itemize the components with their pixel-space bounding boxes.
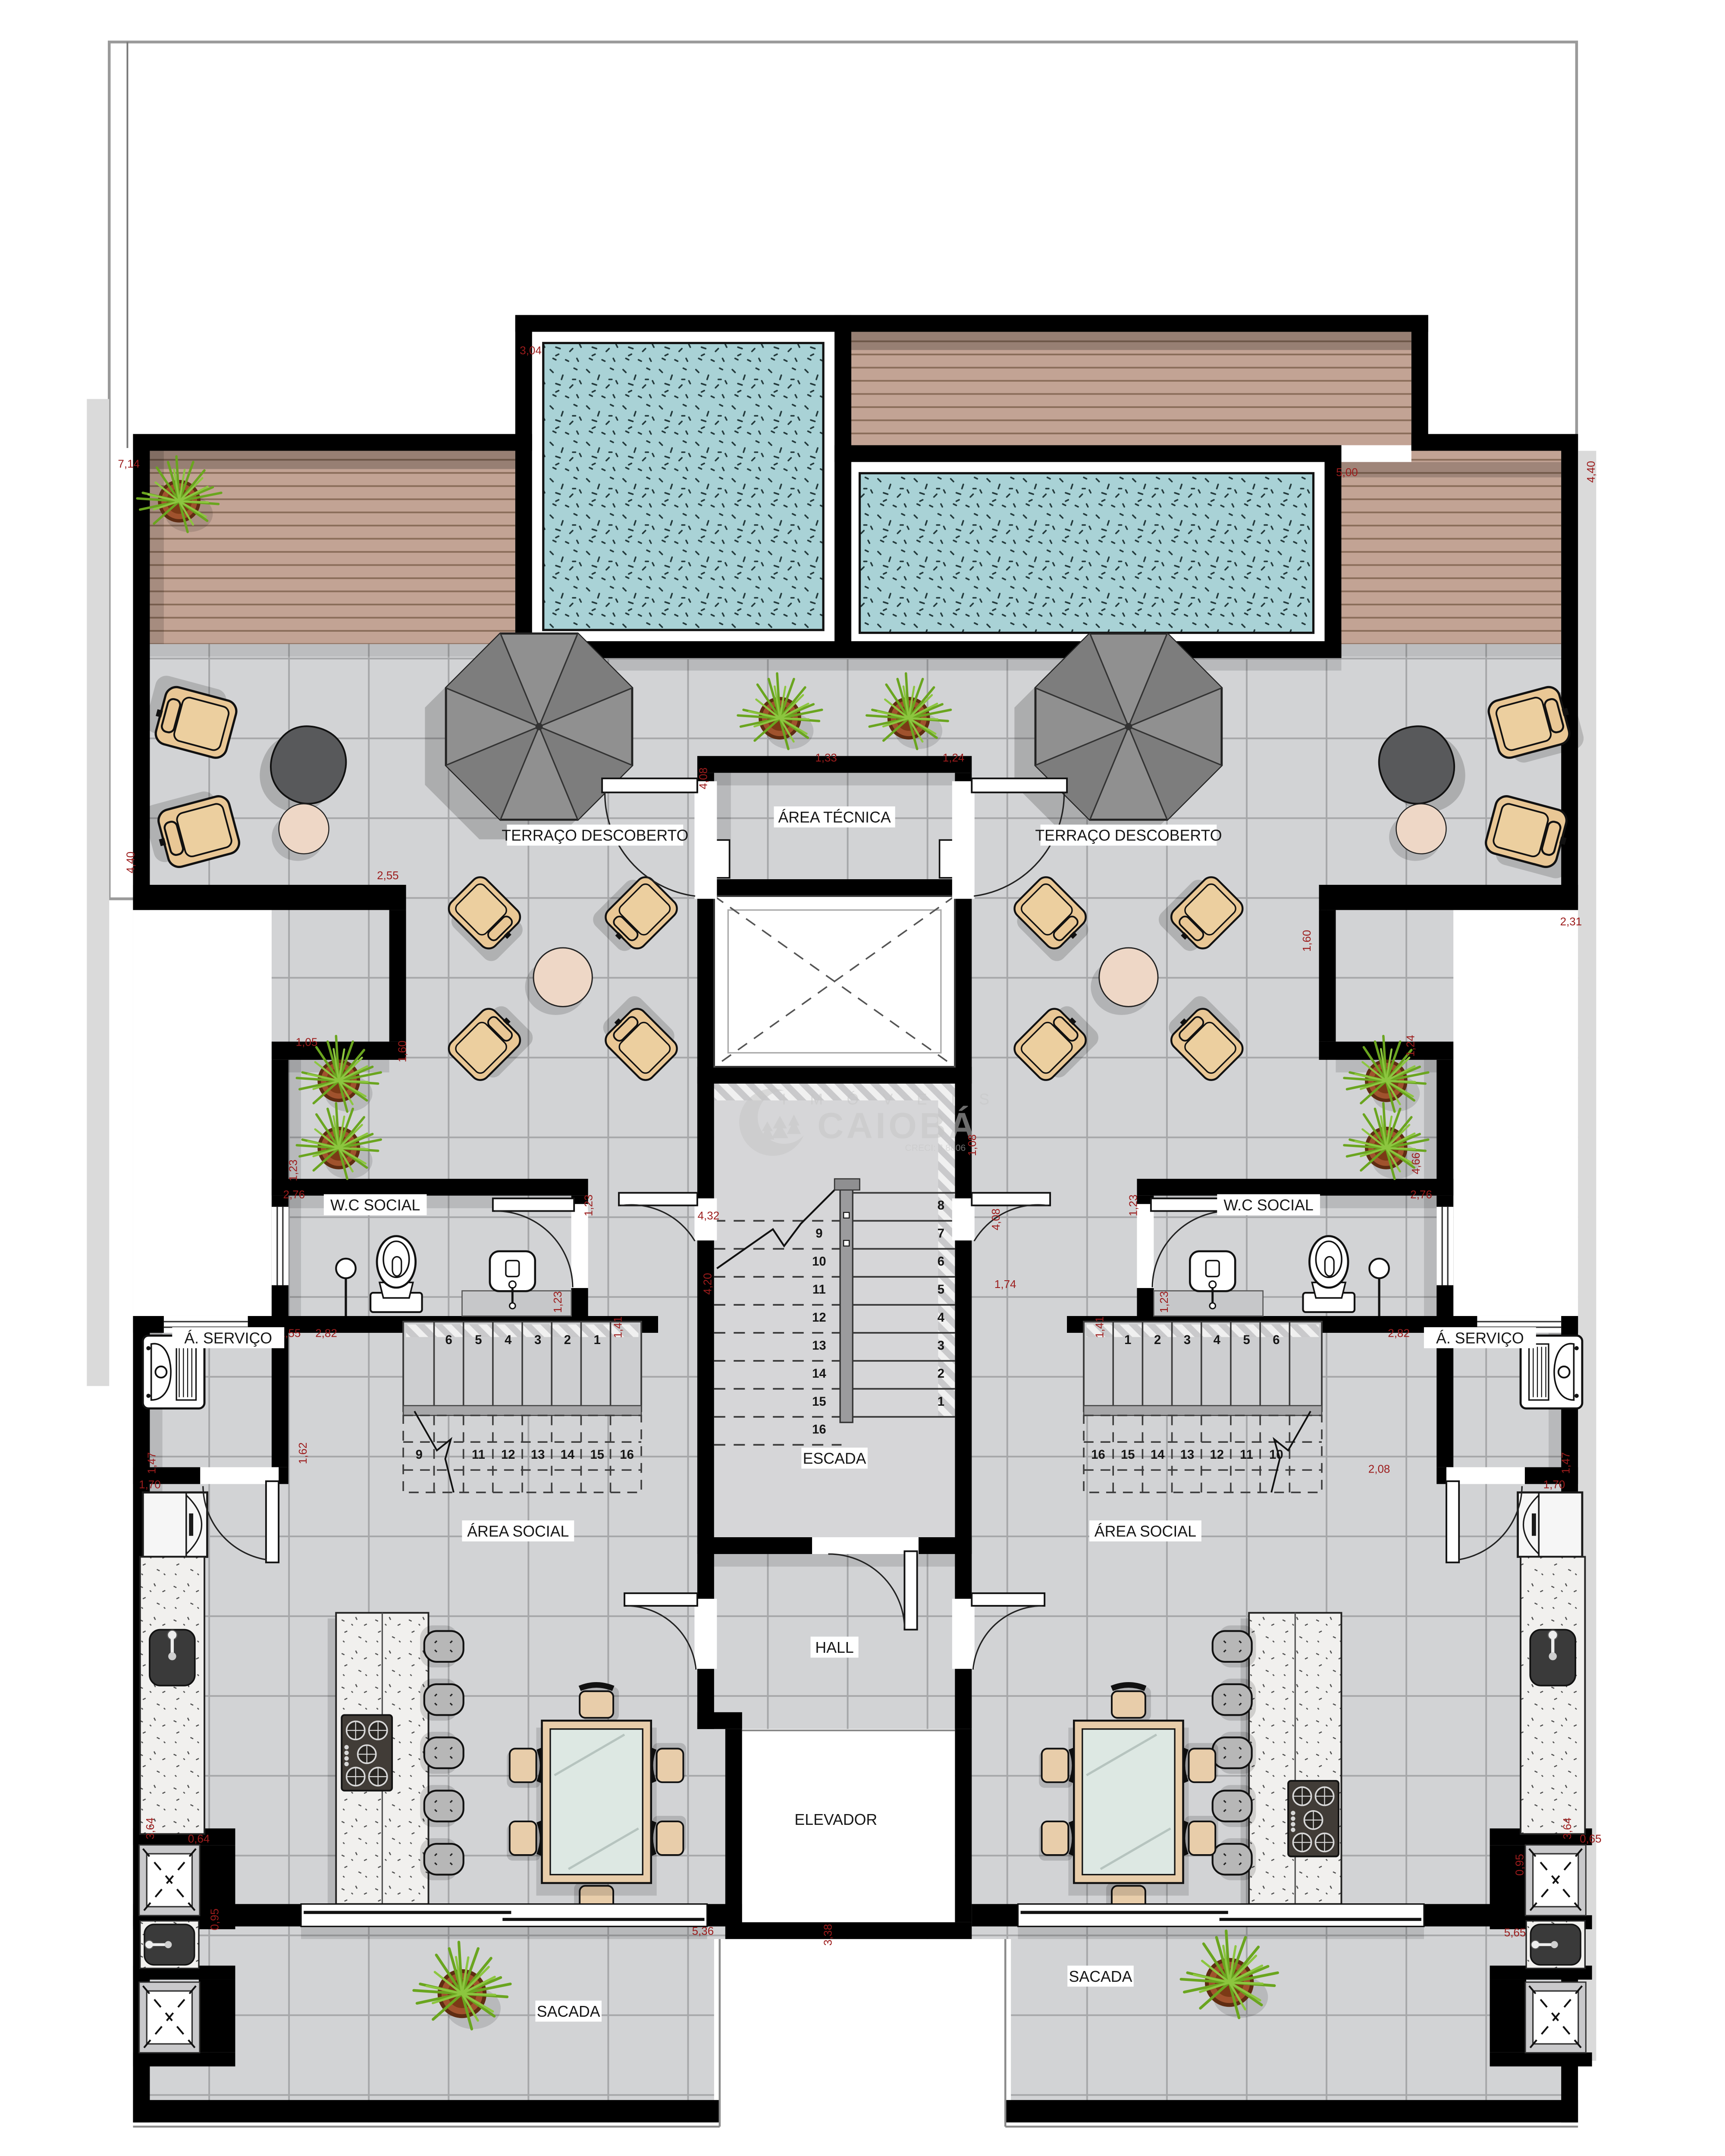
- dimension-label: 1,23: [551, 1291, 564, 1313]
- island-left: [328, 1613, 464, 1912]
- dimension-label: 5,00: [1336, 466, 1358, 479]
- counter-right: [1521, 1557, 1585, 1834]
- floor-plan-stage: I M Ó V E I S CAIOBÁ CRECI: J 8806 87654…: [0, 0, 1725, 2156]
- counter-left: [140, 1557, 204, 1834]
- dimension-label: 0,95: [1513, 1854, 1526, 1876]
- room-label: SACADA: [1069, 1968, 1132, 1985]
- stair-number: 13: [1180, 1448, 1195, 1462]
- room-label: TERRAÇO DESCOBERTO: [1035, 827, 1222, 844]
- stair-number: 6: [938, 1255, 944, 1269]
- dimension-label: 4,40: [1584, 461, 1597, 483]
- stair-number: 2: [1154, 1333, 1161, 1347]
- dimension-label: 1,41: [1093, 1316, 1106, 1338]
- dimension-label: 2,55: [377, 869, 399, 882]
- dimension-label: 3,64: [1561, 1818, 1574, 1839]
- dimension-label: 1,60: [1300, 930, 1313, 952]
- stair-number: 5: [475, 1333, 482, 1347]
- dimension-label: 1,23: [1157, 1291, 1170, 1313]
- watermark-brand: CAIOBÁ: [817, 1106, 978, 1146]
- fridge: [1518, 1492, 1582, 1557]
- dimension-label: 1,60: [396, 1040, 409, 1062]
- stair-number: 1: [594, 1333, 601, 1347]
- fridge: [143, 1492, 207, 1557]
- dimension-label: 1,23: [1126, 1194, 1139, 1216]
- dimension-label: 2,76: [283, 1188, 305, 1201]
- stair-number: 16: [812, 1423, 826, 1437]
- stair-number: 5: [938, 1283, 944, 1297]
- stair-number: 5: [1243, 1333, 1250, 1347]
- dimension-label: 3,04: [520, 344, 542, 357]
- floor-plan-svg: I M Ó V E I S CAIOBÁ CRECI: J 8806 87654…: [0, 0, 1725, 2156]
- dimension-label: 1,23: [286, 1159, 299, 1181]
- stair-number: 2: [564, 1333, 571, 1347]
- stair-number: 12: [812, 1311, 826, 1325]
- stair-number: 14: [561, 1448, 575, 1462]
- stair-number: 6: [1273, 1333, 1280, 1347]
- stair-number: 1: [938, 1395, 944, 1409]
- room-label: ÁREA SOCIAL: [467, 1523, 569, 1540]
- stair-number: 7: [938, 1227, 944, 1241]
- window-wc-left: [272, 1207, 289, 1285]
- room-label: ELEVADOR: [794, 1811, 877, 1828]
- dimension-label: 1,47: [145, 1452, 158, 1474]
- dimension-label: 2,76: [1410, 1188, 1432, 1201]
- room-label: TERRAÇO DESCOBERTO: [502, 827, 688, 844]
- dimension-label: 1,41: [612, 1316, 624, 1338]
- island-right: [1213, 1613, 1342, 1912]
- void-bottom-center: [714, 1939, 1011, 2127]
- stair-number: 4: [1214, 1333, 1221, 1347]
- room-label: HALL: [815, 1639, 853, 1656]
- stair-number: 12: [1210, 1448, 1224, 1462]
- dimension-label: 4,32: [698, 1209, 720, 1222]
- dimension-label: 4,08: [989, 1209, 1002, 1231]
- pool-right: [860, 473, 1314, 633]
- dimension-label: 4,20: [701, 1273, 714, 1295]
- dimension-label: 3,64: [144, 1818, 157, 1839]
- dimension-label: 1,05: [296, 1035, 318, 1048]
- dimension-label: 4,40: [124, 852, 137, 874]
- stair-number: 3: [1184, 1333, 1191, 1347]
- stair-number: 6: [445, 1333, 452, 1347]
- stair-number: 13: [531, 1448, 545, 1462]
- room-label: ÁREA TÉCNICA: [778, 808, 891, 826]
- stair-number: 16: [1091, 1448, 1105, 1462]
- dimension-label: 5,65: [1504, 1926, 1526, 1939]
- dimension-label: 2,08: [1368, 1463, 1390, 1476]
- stair-number: 2: [938, 1367, 944, 1381]
- window-wc-right: [1436, 1207, 1453, 1285]
- stair-number: 16: [620, 1448, 634, 1462]
- stair-number: 9: [815, 1227, 822, 1241]
- dimension-label: 4,08: [697, 768, 710, 790]
- watermark-creci: CRECI: J 8806: [905, 1143, 966, 1153]
- room-label: Á. SERVIÇO: [1436, 1329, 1524, 1347]
- sliding-door-right: [1018, 1904, 1424, 1927]
- dimension-label: 0,65: [1580, 1832, 1602, 1845]
- stair-number: 14: [812, 1367, 826, 1381]
- stair-number: 15: [590, 1448, 605, 1462]
- stair-number: 8: [938, 1199, 944, 1213]
- stair-number: 15: [1121, 1448, 1135, 1462]
- pool-left: [543, 343, 823, 630]
- dimension-label: 1,08: [966, 1134, 979, 1156]
- sliding-door-left: [301, 1904, 707, 1927]
- stair-number: 4: [938, 1311, 945, 1325]
- stair-number: 10: [1269, 1448, 1283, 1462]
- dimension-label: 1,47: [1559, 1452, 1572, 1474]
- dimension-label: 1,70: [1543, 1478, 1565, 1491]
- dimension-label: 1,62: [296, 1442, 309, 1464]
- dimension-label: 7,14: [118, 457, 140, 470]
- dimension-label: 2,82: [315, 1327, 337, 1340]
- stair-number: 14: [1151, 1448, 1165, 1462]
- stair-number: 11: [472, 1448, 485, 1462]
- stair-number: 3: [534, 1333, 541, 1347]
- room-label: W.C SOCIAL: [330, 1197, 420, 1214]
- dimension-label: 0,95: [208, 1908, 221, 1930]
- stair-number: 3: [938, 1339, 944, 1353]
- room-label: SACADA: [537, 2003, 600, 2020]
- stair-number: 15: [812, 1395, 826, 1409]
- dimension-label: 1,74: [994, 1278, 1016, 1291]
- room-label: Á. SERVIÇO: [184, 1329, 272, 1347]
- dimension-label: 5,36: [692, 1924, 714, 1937]
- dimension-label: 2,31: [1560, 915, 1582, 928]
- dimension-label: 1,70: [139, 1478, 161, 1491]
- room-label: ESCADA: [803, 1450, 866, 1467]
- dimension-label: 2,82: [1388, 1327, 1410, 1340]
- dimension-label: 1,24: [943, 751, 965, 764]
- room-label: ÁREA SOCIAL: [1095, 1523, 1196, 1540]
- dimension-label: 1,24: [1404, 1035, 1417, 1057]
- void-left: [133, 910, 271, 1316]
- stair-number: 10: [812, 1255, 826, 1269]
- stair-number: 1: [1124, 1333, 1131, 1347]
- room-label: W.C SOCIAL: [1223, 1197, 1313, 1214]
- stair-number: 12: [501, 1448, 515, 1462]
- stair-number: 11: [812, 1283, 826, 1297]
- stair-number: 9: [416, 1448, 423, 1462]
- stair-number: 11: [1240, 1448, 1253, 1462]
- stair-number: 13: [812, 1339, 826, 1353]
- dimension-label: 0,64: [188, 1832, 210, 1845]
- dimension-label: 1,23: [582, 1194, 595, 1216]
- stair-number: 4: [505, 1333, 512, 1347]
- dimension-label: 4,66: [1409, 1153, 1422, 1175]
- elevator-shaft: [714, 896, 955, 1067]
- void-right: [1453, 910, 1578, 1316]
- dimension-label: 1,33: [815, 751, 837, 764]
- dimension-label: 3,38: [822, 1924, 834, 1946]
